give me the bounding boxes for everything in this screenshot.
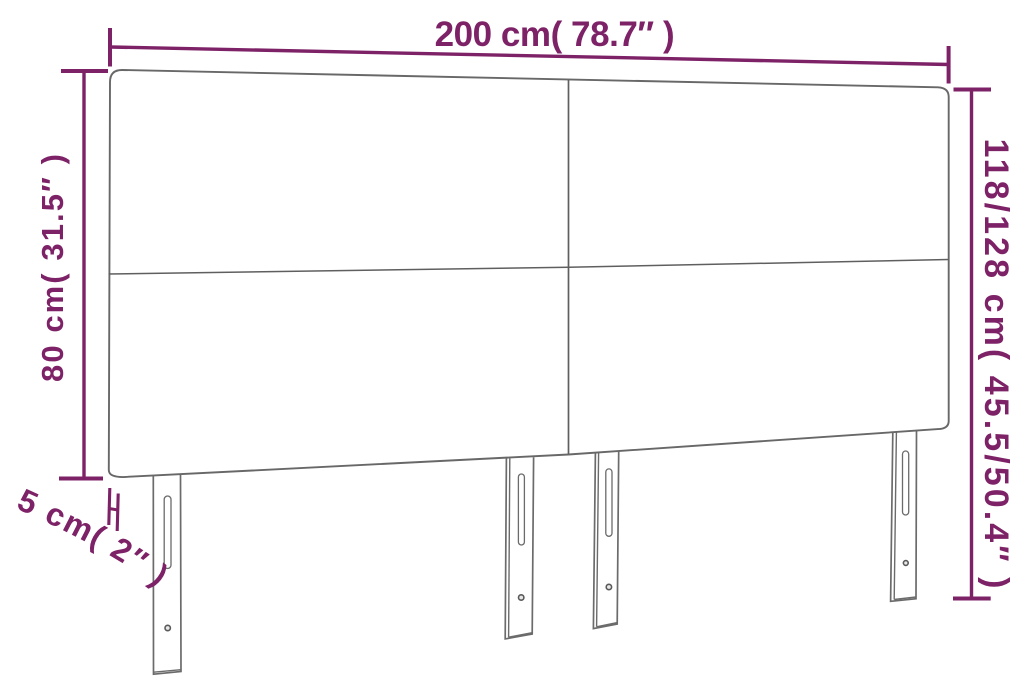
svg-text:200 cm( 78.7″ ): 200 cm( 78.7″ ) [435, 15, 675, 54]
svg-text:80 cm( 31.5″ ): 80 cm( 31.5″ ) [35, 154, 70, 382]
